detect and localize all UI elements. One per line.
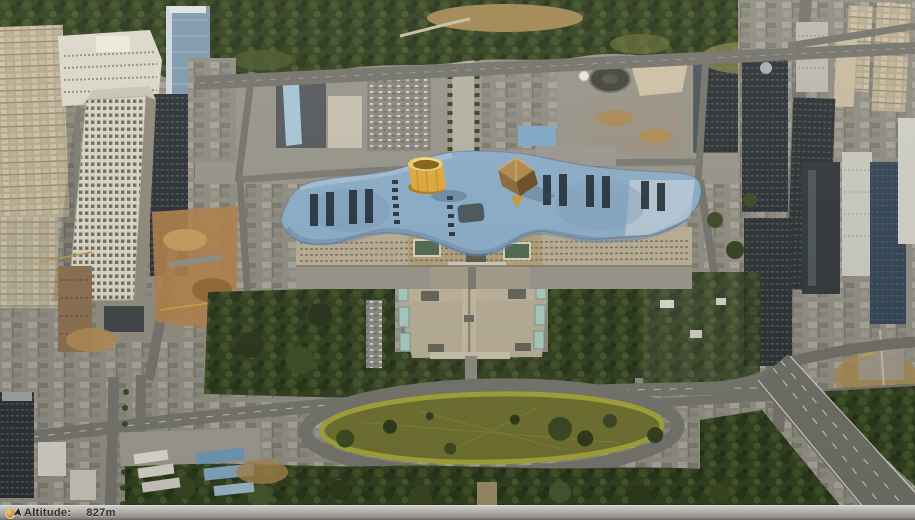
- map-canvas[interactable]: Altitude: 827m: [0, 0, 915, 520]
- atmosphere-overlay: [0, 0, 915, 520]
- status-bar: Altitude: 827m: [0, 505, 915, 520]
- north-arrow-icon[interactable]: [11, 506, 25, 519]
- altitude-value: 827m: [86, 506, 115, 520]
- aerial-scene: [0, 0, 915, 520]
- altitude-label: Altitude:: [24, 506, 71, 520]
